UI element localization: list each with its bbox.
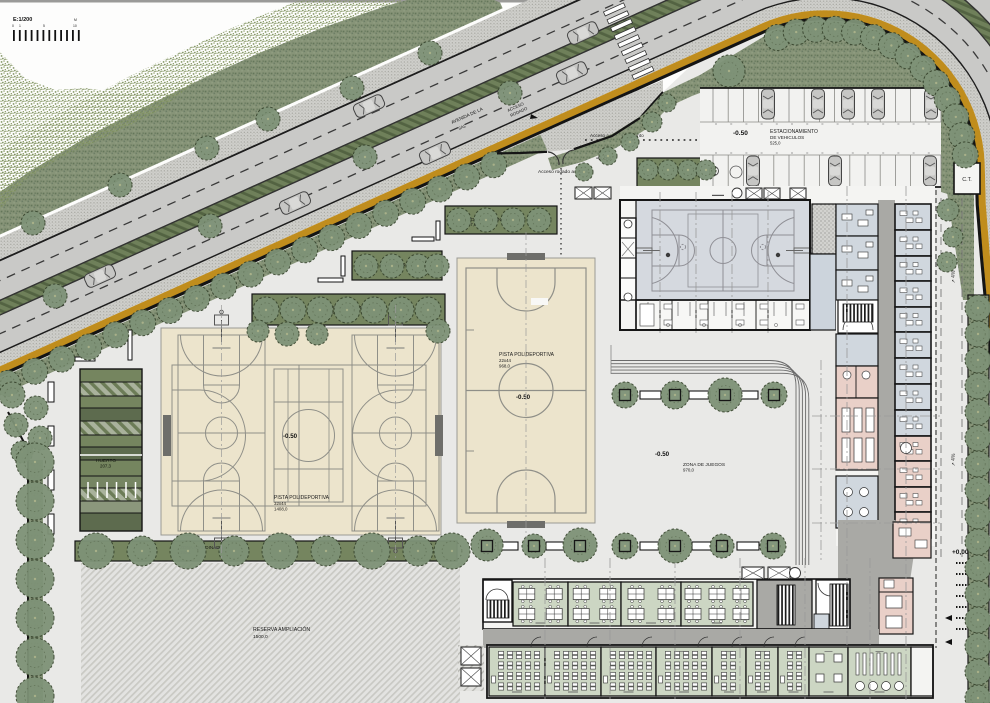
svg-text:1500,0: 1500,0 <box>253 634 268 640</box>
svg-text:22x44: 22x44 <box>499 358 512 363</box>
svg-text:5: 5 <box>43 24 45 28</box>
svg-text:+0,00: +0,00 <box>952 549 969 556</box>
svg-text:1: 1 <box>19 24 21 28</box>
svg-text:207,3: 207,3 <box>100 464 112 469</box>
svg-text:DE VEHICULOS: DE VEHICULOS <box>770 135 804 140</box>
svg-text:-0.50: -0.50 <box>516 394 531 401</box>
svg-text:0: 0 <box>12 24 14 28</box>
svg-text:10: 10 <box>73 24 77 28</box>
svg-text:1408,0: 1408,0 <box>274 507 288 512</box>
svg-text:M: M <box>74 18 77 22</box>
svg-text:970,0: 970,0 <box>683 468 695 473</box>
svg-text:-0.50: -0.50 <box>283 433 298 440</box>
svg-text:▬▬▬: ▬▬▬ <box>712 192 724 197</box>
svg-text:C.T.: C.T. <box>962 177 972 183</box>
svg-text:-0.50: -0.50 <box>733 130 748 137</box>
svg-text:525,0: 525,0 <box>770 141 781 146</box>
svg-text:↗ 4%: ↗ 4% <box>951 453 957 466</box>
svg-text:RESERVA AMPLIACIÓN: RESERVA AMPLIACIÓN <box>253 626 310 633</box>
svg-text:-0.50: -0.50 <box>655 451 670 458</box>
svg-text:↗ 4%: ↗ 4% <box>951 270 957 283</box>
svg-text:E:1/200: E:1/200 <box>13 17 32 23</box>
svg-text:32x44: 32x44 <box>274 501 287 506</box>
svg-text:968,0: 968,0 <box>499 364 511 369</box>
